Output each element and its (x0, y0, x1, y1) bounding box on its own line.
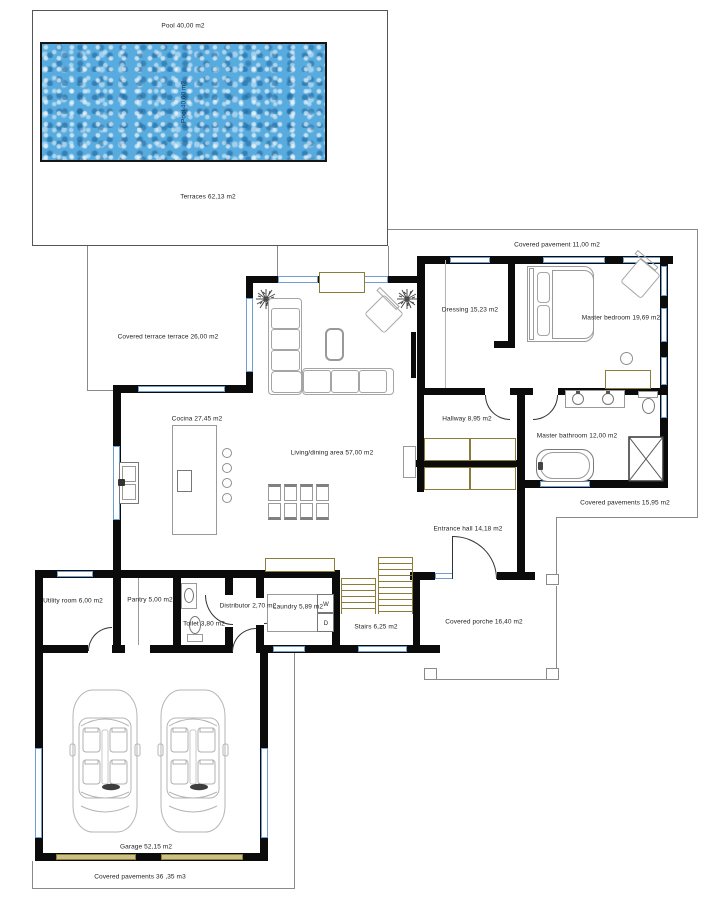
front-door-arc (453, 536, 497, 579)
wardrobe (470, 438, 516, 461)
fireplace (319, 272, 365, 293)
dining-chair (316, 484, 329, 501)
sink-basin (122, 484, 136, 500)
dining-chair (284, 503, 297, 520)
stairs-label: Stairs 6,25 m2 (354, 624, 397, 631)
tv-unit (411, 332, 416, 378)
master-bathroom-label: Master bathroom 12,00 m2 (537, 433, 617, 440)
front-door-leaf (452, 536, 453, 579)
dining-chair (284, 484, 297, 501)
window (246, 298, 253, 372)
wall-utility-pantry (113, 576, 121, 653)
wardrobe (470, 467, 516, 490)
window (138, 386, 225, 392)
pantry-label: Pantry 5,00 m2 (127, 597, 172, 604)
sofa-cushion (271, 329, 300, 350)
terrace-outline (388, 246, 389, 277)
pool-label: Pool 40,00 m2 (161, 23, 204, 30)
terraces-label: Terraces 62,13 m2 (180, 194, 236, 201)
wall-utility-bottom (35, 645, 88, 653)
pavement-outline-garage (32, 888, 295, 889)
covered-pavements-bottom-label: Covered pavements 36 ,35 m3 (94, 874, 186, 881)
porch-outline (437, 679, 547, 680)
garage-label: Garage 52,15 m2 (120, 844, 172, 851)
wall-hallway-top (417, 388, 485, 395)
pantry-shelf-line (138, 578, 139, 645)
porch-column (546, 668, 559, 680)
porch-outline (556, 586, 557, 668)
covered-pavement-top-label: Covered pavement 11,00 m2 (514, 242, 600, 249)
dining-chair (268, 503, 281, 520)
wardrobe (424, 467, 470, 490)
covered-terrace-label: Covered terrace terrace 26,00 m2 (118, 334, 219, 341)
sofa-cushion (303, 370, 331, 393)
living-dining-label: Living/dining area 57,00 m2 (291, 450, 374, 457)
wall-dressing-divider (494, 341, 508, 348)
dressing-label: Dressing 15,23 m2 (442, 307, 498, 314)
pool-inner-label: Pool 40,00 m2 (181, 81, 188, 123)
faucet-icon (118, 479, 125, 486)
wall-stairs-right (413, 572, 420, 653)
entrance-hall-label: Entrance hall 14,18 m2 (433, 526, 502, 533)
understair-cabinet (265, 558, 335, 572)
toilet-tank (187, 634, 203, 642)
window (358, 646, 407, 652)
terrace-outline (277, 246, 278, 277)
car-icon (158, 686, 228, 836)
garage-door (161, 854, 243, 860)
stool (222, 493, 232, 503)
floor-plan: Pool 40,00 m2 Pool 40,00 m2 Terraces 62,… (0, 0, 710, 900)
distributor-label: Distributor 2,70 m2 (220, 603, 277, 610)
window (543, 257, 605, 263)
duvet (552, 270, 594, 339)
dining-chair (268, 484, 281, 501)
dryer-label: D (324, 621, 328, 627)
wall-hallway-top (510, 388, 533, 395)
toilet-bowl (642, 398, 655, 414)
stool (222, 463, 232, 473)
porch-column (546, 574, 559, 585)
stair-flight-right (378, 557, 413, 614)
dining-chair (300, 484, 313, 501)
shower (628, 436, 664, 482)
pavement-outline-east (556, 517, 698, 518)
sofa-corner (271, 371, 302, 393)
terrace-outline (87, 390, 114, 391)
hallway-label: Hallway 8,95 m2 (442, 416, 492, 423)
sofa-cushion (359, 370, 387, 393)
sink-basin (602, 393, 614, 405)
terrace-outline (87, 246, 88, 390)
dining-chair (300, 503, 313, 520)
sofa-cushion (271, 350, 300, 371)
cabinet (403, 446, 416, 478)
window (661, 394, 667, 418)
laundry-counter (267, 594, 318, 632)
wall-toilet-right (225, 570, 233, 595)
pavement-outline-east (697, 229, 698, 517)
wall-utility-bottom (150, 645, 233, 653)
window (35, 748, 42, 838)
wall-toilet-left (173, 570, 181, 653)
laundry-label: Laundry 5,89 m2 (273, 604, 323, 611)
window (362, 276, 388, 283)
bed-headboard (529, 268, 534, 340)
dressing-table (605, 370, 651, 389)
wall-entrance-bottom (497, 572, 535, 580)
pavement-outline-garage (32, 861, 33, 888)
dryer: D (317, 613, 334, 632)
window (661, 308, 667, 342)
utility-room-label: Utility room 6,00 m2 (43, 598, 103, 605)
washer-label: W (323, 602, 329, 608)
pavement-outline-top (388, 229, 698, 230)
wall-dressing-left (417, 256, 425, 395)
bath-tap-icon (538, 462, 543, 470)
sofa-cushion (271, 308, 300, 329)
sink-basin (572, 393, 584, 405)
tap-icon (606, 391, 610, 394)
tap-icon (576, 391, 580, 394)
window (661, 266, 667, 296)
bathtub-inner (540, 452, 590, 479)
car-icon (70, 686, 140, 836)
covered-pavements-east-label: Covered pavements 15,95 m2 (580, 500, 670, 507)
toilet-sink-basin (184, 588, 194, 603)
wall-dressing-divider (508, 256, 515, 348)
stool (222, 448, 232, 458)
wall-hallway-left (417, 395, 424, 492)
master-bedroom-label: Master bedroom 19,69 m2 (582, 315, 661, 322)
cooktop (177, 470, 192, 492)
porch-outline (556, 517, 557, 574)
toilet-tank (638, 391, 658, 398)
cocina-label: Cocina 27,45 m2 (172, 416, 223, 423)
window (261, 748, 268, 838)
pavement-outline-garage (294, 653, 295, 888)
wall-laundry-left (256, 570, 264, 598)
stair-flight-left (341, 578, 376, 614)
garage-door (56, 854, 136, 860)
porch-column (424, 668, 437, 680)
dressing-stool (620, 352, 633, 365)
window (661, 357, 667, 385)
toilet-label: Toilet 3,80 m2 (183, 621, 225, 628)
closet-line (445, 260, 446, 388)
door-arc-utility (88, 627, 112, 651)
coffee-table (325, 328, 344, 361)
window (57, 571, 93, 577)
window (273, 646, 305, 652)
window (435, 573, 453, 579)
wall-wardrobe-mid (405, 460, 520, 467)
pillow (537, 305, 550, 336)
stool (222, 478, 232, 488)
dining-chair (316, 503, 329, 520)
sofa-cushion (331, 370, 359, 393)
wall-utility-left (35, 570, 43, 653)
pillow (537, 272, 550, 303)
covered-porche-label: Covered porche 16,40 m2 (445, 619, 522, 626)
door-arc-distributor (232, 628, 256, 652)
window (450, 257, 490, 263)
door-arc-bathroom (533, 395, 558, 420)
wardrobe (424, 438, 470, 461)
window (278, 276, 318, 283)
